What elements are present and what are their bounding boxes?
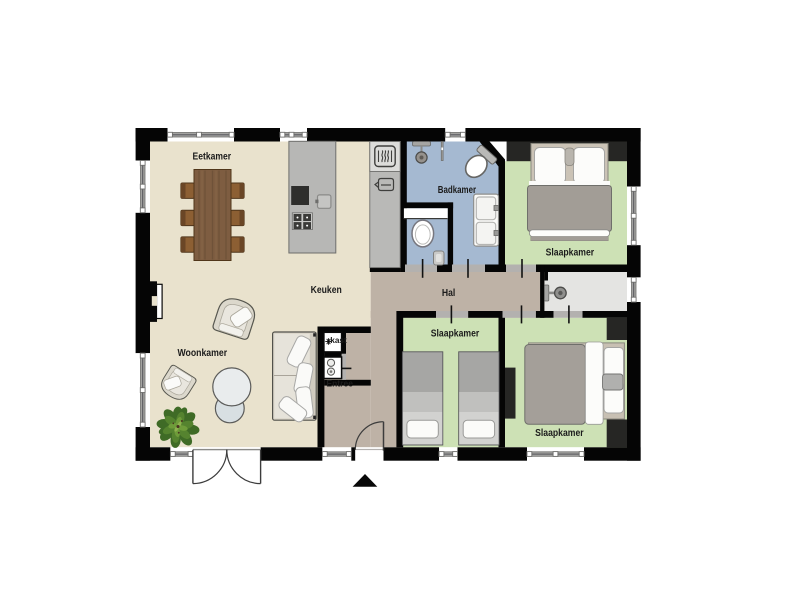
svg-text:kast: kast — [330, 335, 347, 345]
svg-text:Keuken: Keuken — [311, 285, 342, 296]
svg-text:Entree: Entree — [326, 379, 353, 389]
svg-text:Eetkamer: Eetkamer — [193, 152, 232, 163]
svg-text:Slaapkamer: Slaapkamer — [546, 248, 595, 259]
svg-text:Hal: Hal — [442, 288, 456, 299]
svg-text:Badkamer: Badkamer — [438, 185, 476, 196]
svg-text:Slaapkamer: Slaapkamer — [535, 428, 584, 439]
svg-text:Slaapkamer: Slaapkamer — [431, 328, 480, 339]
svg-text:Woonkamer: Woonkamer — [177, 348, 227, 359]
